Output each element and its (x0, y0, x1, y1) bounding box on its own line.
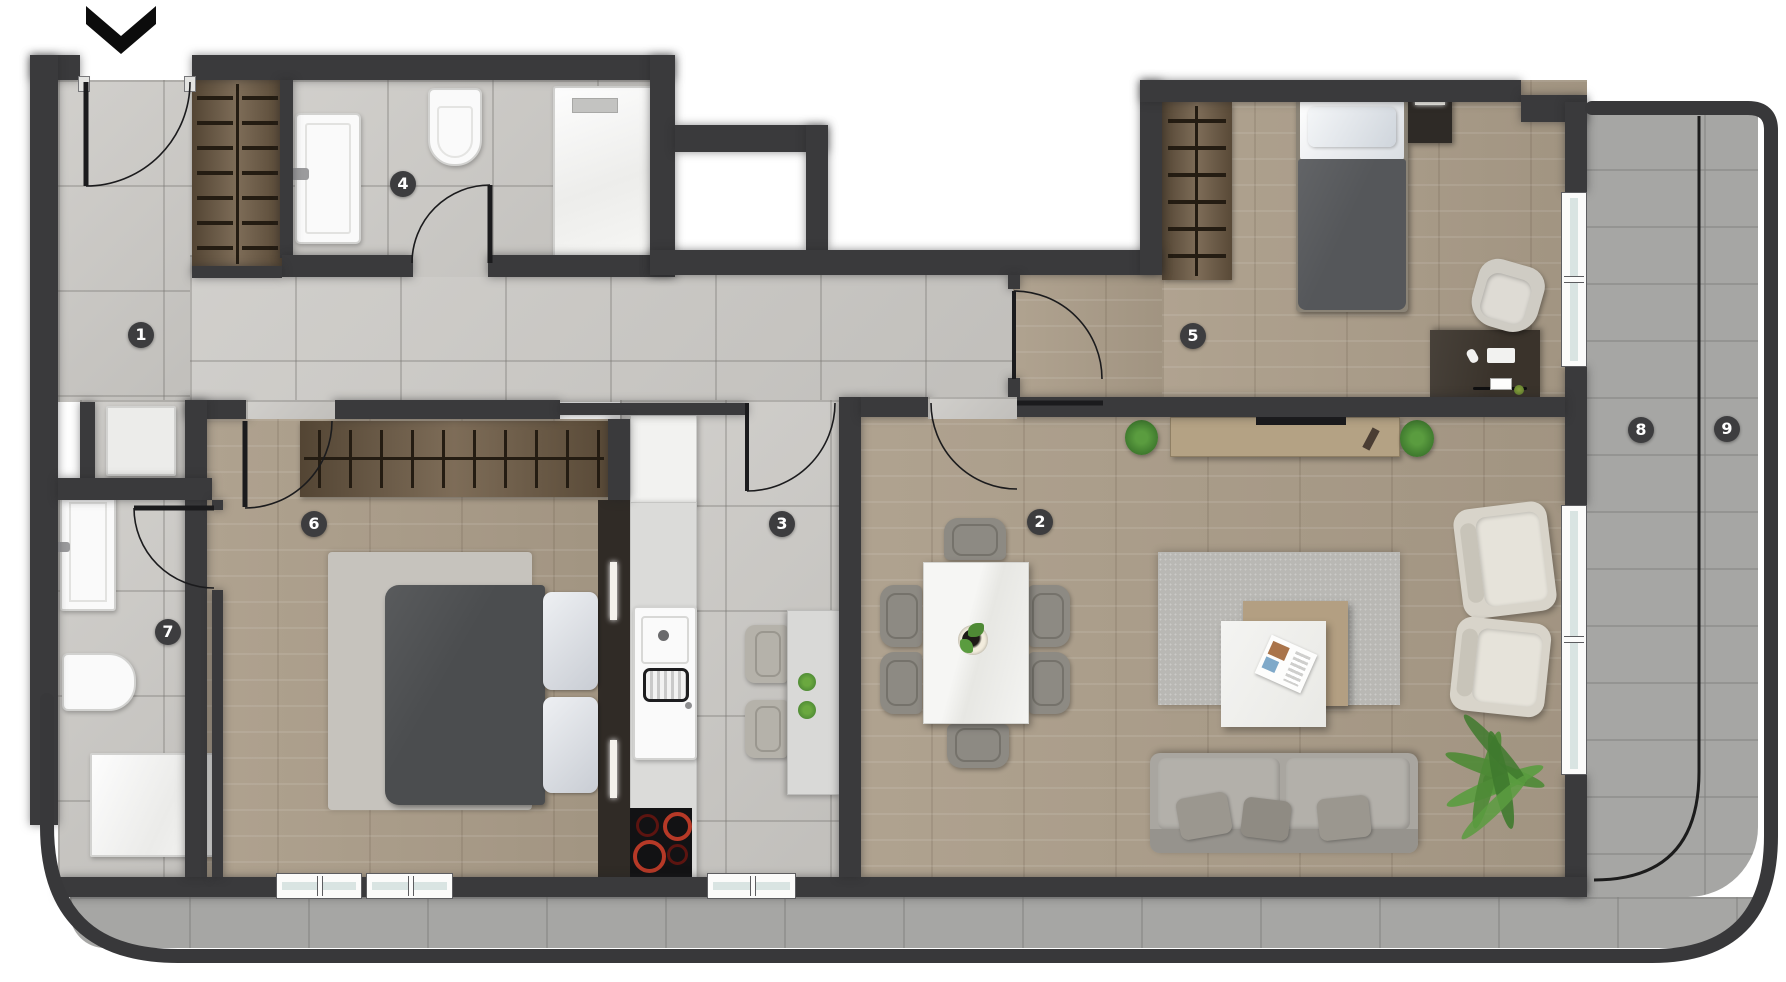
wall-bath7-right-lower (212, 590, 223, 877)
room-label-2-living-room: 2 (1027, 509, 1053, 535)
room-label-1-hall: 1 (128, 322, 154, 348)
entry-hall-floor (58, 80, 192, 402)
bedroom6-bed-blanket (385, 585, 545, 805)
plant-right-of-console (1400, 420, 1434, 457)
floor-plan-canvas: 1 2 3 4 5 6 7 8 9 (0, 0, 1786, 982)
bathroom4-faucet (291, 168, 309, 180)
entry-wardrobe (192, 80, 282, 268)
wall-living-top-left (861, 397, 930, 417)
wall-bedroom5-door-jamb-top (1008, 275, 1020, 289)
dining-chair-right-1 (1028, 585, 1070, 647)
wall-corridor-top (650, 250, 1162, 275)
window-bedroom5 (1561, 192, 1587, 367)
magazine (1255, 635, 1318, 694)
dining-chair-left-1 (880, 585, 922, 647)
kitchen-chair-1 (745, 625, 787, 683)
dining-chair-bottom (947, 724, 1009, 768)
corridor-floor (190, 255, 1013, 402)
kitchen-stove (630, 808, 692, 877)
niche-appliance (106, 406, 176, 476)
wall-right-upper (1565, 102, 1587, 192)
room-label-3-kitchen: 3 (769, 511, 795, 537)
bedroom6-headboard-column (598, 500, 630, 877)
window-bedroom6-right (366, 873, 453, 899)
dining-chair-left-2 (880, 652, 922, 714)
bathroom7-toilet (62, 653, 136, 711)
bathroom7-sink (60, 493, 116, 611)
wall-corridor-bottom-right (333, 400, 560, 419)
wall-top-main (192, 55, 675, 80)
bedroom6-wardrobe (300, 421, 608, 497)
sofa-pillow-2 (1240, 796, 1293, 842)
wall-right-middle (1565, 367, 1587, 505)
entrance-jamb-left (78, 76, 90, 92)
bathroom4-shower (553, 86, 654, 266)
wall-shaft-left (650, 55, 675, 275)
bedroom5-bed (1296, 95, 1408, 312)
entrance-jamb-right (184, 76, 196, 92)
bedroom5-blanket (1298, 159, 1406, 310)
kitchen-chair-2 (745, 700, 787, 758)
wall-bath7-right-upper (212, 500, 223, 510)
wall-left (30, 55, 58, 825)
wall-bedroom6-left (185, 400, 207, 877)
window-kitchen (707, 873, 796, 899)
bathroom4-toilet (428, 88, 482, 166)
tv-screen (1256, 416, 1346, 425)
window-bedroom6-left (276, 873, 362, 899)
plant-left-of-console (1125, 420, 1158, 455)
balcony-bottom-floor (70, 897, 1758, 948)
bedroom6-pillow-top (543, 592, 598, 690)
tv-remote (1362, 427, 1379, 450)
sofa (1150, 753, 1418, 853)
desk-keyboard (1487, 348, 1515, 363)
wall-bath4-bottom-right (488, 255, 675, 277)
dining-chair-right-2 (1028, 652, 1070, 714)
bedroom6-pillow-bottom (543, 697, 598, 793)
desk-mouse (1465, 348, 1480, 365)
room-label-8-balcony: 8 (1628, 417, 1654, 443)
dining-table-plant (958, 625, 988, 655)
sofa-pillow-3 (1316, 794, 1372, 841)
living-door-threshold (928, 397, 1017, 419)
kitchen-faucet (658, 630, 669, 641)
wall-bedroom5-left (1140, 80, 1162, 275)
room-label-9-balcony: 9 (1714, 416, 1740, 442)
balcony-8-floor (1585, 112, 1758, 897)
sofa-pillow-1 (1175, 791, 1234, 841)
bedroom5-wardrobe (1162, 102, 1232, 280)
room-label-4-bathroom: 4 (390, 171, 416, 197)
armchair-lower (1448, 615, 1552, 718)
wall-wardrobe-entry-base (192, 266, 282, 278)
window-living-room (1561, 505, 1587, 775)
wall-bath4-bottom-left (282, 255, 413, 277)
wall-kitchen-living (839, 397, 861, 877)
bedroom-5-entry-floor (1013, 273, 1162, 402)
dining-chair-top (944, 518, 1006, 560)
wall-bedroom5-top (1140, 80, 1521, 102)
palm-plant (1435, 722, 1555, 840)
entrance-arrow-icon (86, 6, 156, 54)
wall-bath4-left (280, 80, 293, 258)
kitchen-table-plant-2 (798, 701, 816, 719)
wall-niche-bottom (58, 478, 212, 500)
kitchen-sink-unit (633, 606, 697, 760)
kitchen-table-plant-1 (798, 673, 816, 691)
armchair-upper (1452, 500, 1559, 621)
room-label-5-bedroom: 5 (1180, 323, 1206, 349)
desk-plant (1514, 385, 1524, 395)
wall-bedroom6-right (608, 419, 630, 500)
kitchen-table (787, 610, 841, 795)
tv-console (1170, 417, 1400, 457)
bedroom5-pillow (1308, 107, 1396, 147)
wall-shaft-right (806, 125, 828, 250)
bedroom-6-door-threshold (246, 400, 335, 419)
coffee-table-white (1221, 621, 1326, 727)
desk-monitor (1490, 378, 1512, 390)
room-label-6-bedroom: 6 (301, 511, 327, 537)
dining-table (923, 562, 1029, 724)
kitchen-drainer (643, 668, 689, 702)
wall-bedroom5-door-jamb-bottom (1008, 378, 1020, 397)
wall-living-top-right (1015, 397, 1565, 417)
room-label-7-bathroom: 7 (155, 619, 181, 645)
kitchen-tall-cabinet (630, 415, 697, 504)
wall-kitchen-top (560, 403, 747, 415)
wall-niche-left (80, 402, 95, 478)
